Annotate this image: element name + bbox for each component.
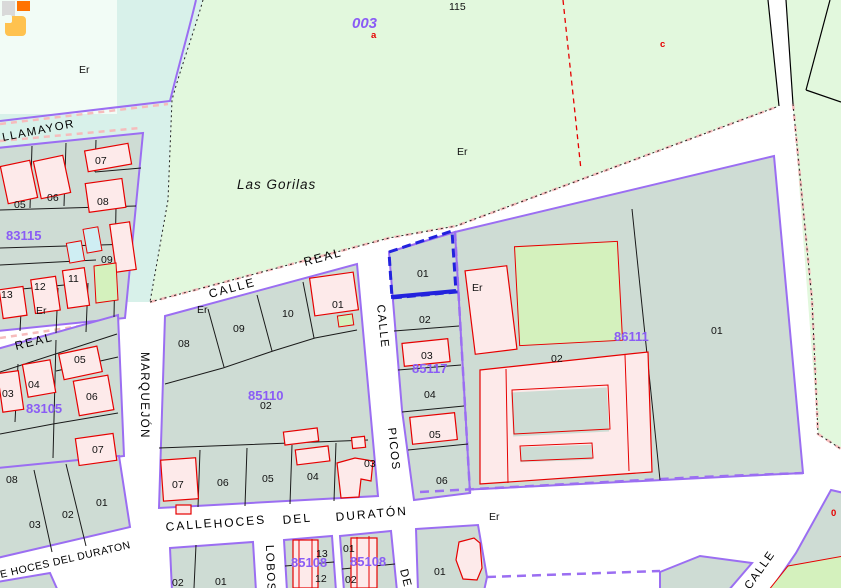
- street-label-de: DE: [397, 568, 413, 588]
- parcel-label: 03: [2, 388, 14, 400]
- parcel-label: 09: [101, 254, 113, 266]
- parcel-label: 06: [86, 391, 98, 403]
- subparcel-label-c: c: [660, 39, 665, 50]
- parcel-label: 01: [332, 299, 344, 311]
- parcel-label: 02: [345, 574, 357, 586]
- parcel-label: 04: [28, 379, 40, 391]
- parcel-label: 07: [92, 444, 104, 456]
- parcel-label: 07: [172, 479, 184, 491]
- logo-notch: [4, 15, 12, 23]
- er-label: Er: [197, 304, 208, 316]
- parcel-label: 12: [34, 281, 46, 293]
- street-label-lobos: LOBOS: [263, 545, 277, 588]
- parcel-label: 02: [551, 353, 563, 365]
- parcel-label: 03: [421, 350, 433, 362]
- er-label: Er: [457, 146, 468, 158]
- parcel-label: 03: [29, 519, 41, 531]
- parcel-label: 01: [711, 325, 723, 337]
- street-label-duraton: DURATÓN: [335, 503, 408, 524]
- er-label: Er: [79, 64, 90, 76]
- courtyard-green: [515, 241, 623, 345]
- parcel-label: 05: [14, 199, 26, 211]
- parcel-label: 10: [282, 308, 294, 320]
- subparcel-label-a: a: [371, 30, 377, 41]
- building-annex: [66, 241, 84, 263]
- street-label-hoces: HOCES: [213, 512, 267, 531]
- block-code-85108-west: 85108: [291, 555, 327, 570]
- parcel-label: 08: [97, 196, 109, 208]
- parcel-label: 02: [260, 400, 272, 412]
- subparcel-green: [94, 263, 118, 303]
- parcel-label: 01: [96, 497, 108, 509]
- parcel-label: 05: [262, 473, 274, 485]
- rural-parcel-label: 115: [449, 1, 466, 13]
- block-code-85108-east: 85108: [350, 554, 386, 569]
- parcel-label: 08: [6, 474, 18, 486]
- parcel-label: 05: [74, 354, 86, 366]
- logo-orange-square: [17, 1, 30, 11]
- parcel-label: 04: [307, 471, 319, 483]
- street-label-calle-picos-1: CALLE: [374, 304, 391, 349]
- parcel-label-red: 0: [831, 508, 836, 519]
- block-code-85117: 85117: [412, 361, 447, 376]
- logo-grey-square: [2, 1, 15, 16]
- er-label: Er: [489, 511, 500, 523]
- block-code-83115: 83115: [6, 228, 41, 243]
- parcel-label: 01: [434, 566, 446, 578]
- building: [295, 446, 330, 465]
- parcel-label: 05: [429, 429, 441, 441]
- er-label: Er: [36, 305, 47, 317]
- selected-parcel-label: 01: [417, 268, 429, 280]
- parcel-label: 02: [62, 509, 74, 521]
- parcel-label: 01: [215, 576, 227, 588]
- er-label: Er: [472, 282, 483, 294]
- parcel-label: 04: [424, 389, 436, 401]
- parcel-label: 06: [47, 192, 59, 204]
- parcel-label: 08: [178, 338, 190, 350]
- building-annex: [352, 436, 366, 448]
- subparcel-green: [337, 314, 353, 327]
- parcel-label: 12: [315, 573, 327, 585]
- parcel-label: 13: [1, 289, 13, 301]
- parcel-label: 03: [364, 458, 376, 470]
- cadastral-map[interactable]: 115 003 a c Er Las Gorilas Er LLAMAYOR R…: [0, 0, 841, 588]
- parcel-label: 06: [217, 477, 229, 489]
- block-code-86111: 86111: [614, 329, 649, 344]
- street-label-calle-picos-2: PICOS: [385, 427, 401, 471]
- block-code-83105: 83105: [26, 401, 62, 416]
- place-name-las-gorilas: Las Gorilas: [237, 177, 316, 192]
- parcel-label: 02: [172, 577, 184, 588]
- street-label-hoces-calle: CALLE: [165, 516, 214, 534]
- street-label-marquejon: MARQUEJÓN: [138, 352, 151, 439]
- parcel-label: 11: [68, 273, 79, 285]
- parcel-label: 09: [233, 323, 245, 335]
- parcel-label: 07: [95, 155, 107, 167]
- map-canvas[interactable]: 115 003 a c Er Las Gorilas Er LLAMAYOR R…: [0, 0, 841, 588]
- parcel-label: 06: [436, 475, 448, 487]
- street-label-del: DEL: [282, 510, 312, 527]
- block-fork[interactable]: [660, 556, 752, 588]
- parcel-label: 02: [419, 314, 431, 326]
- building-courtyard: [511, 388, 609, 437]
- street-south-dashed-border: [487, 571, 660, 577]
- building-annex: [176, 505, 191, 514]
